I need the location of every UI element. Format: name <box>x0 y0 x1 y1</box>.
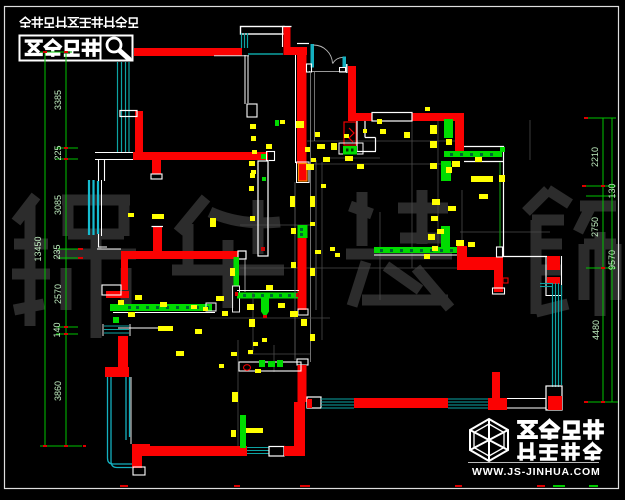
svg-text:2570: 2570 <box>53 284 63 304</box>
svg-text:140: 140 <box>52 322 62 337</box>
svg-text:235: 235 <box>52 244 62 259</box>
svg-text:WWW.JS-JINHUA.COM: WWW.JS-JINHUA.COM <box>472 466 601 478</box>
svg-text:2210: 2210 <box>590 147 600 167</box>
svg-text:13450: 13450 <box>33 236 43 261</box>
svg-text:3385: 3385 <box>53 90 63 110</box>
svg-text:2750: 2750 <box>590 217 600 237</box>
svg-text:3860: 3860 <box>53 381 63 401</box>
svg-text:9570: 9570 <box>607 250 617 270</box>
svg-text:3085: 3085 <box>53 195 63 215</box>
svg-text:225: 225 <box>53 145 63 160</box>
svg-text:4480: 4480 <box>591 320 601 340</box>
svg-text:130: 130 <box>607 183 617 198</box>
